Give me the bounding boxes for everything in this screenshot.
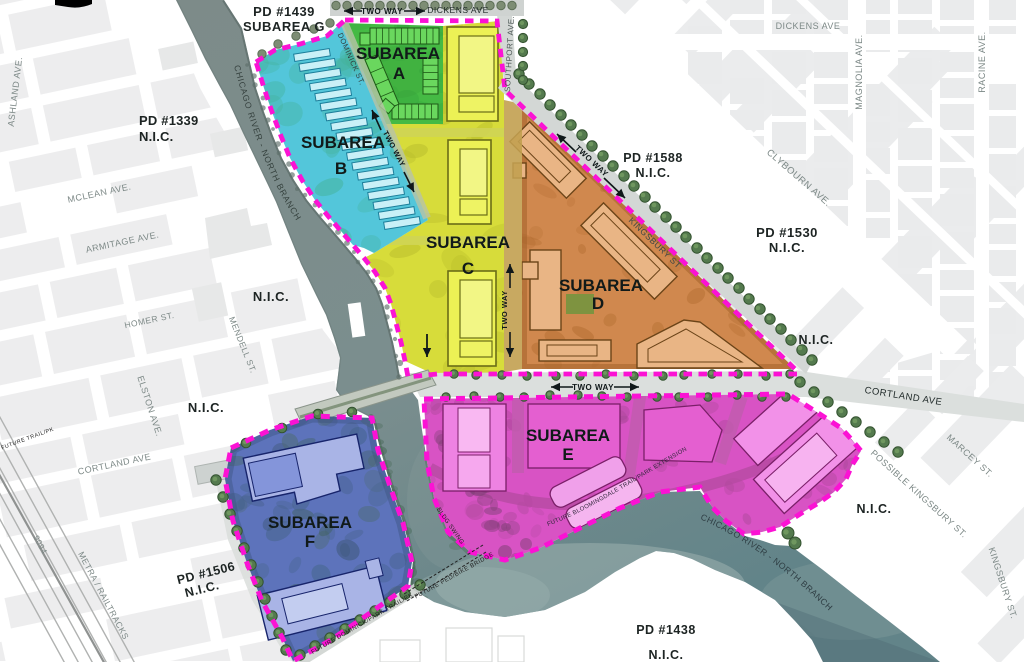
svg-text:A: A xyxy=(393,64,405,83)
svg-text:N.I.C.: N.I.C. xyxy=(636,166,671,180)
svg-text:SUBAREA: SUBAREA xyxy=(356,44,440,63)
svg-text:N.I.C.: N.I.C. xyxy=(799,333,834,347)
svg-text:DICKENS AVE: DICKENS AVE xyxy=(776,21,841,31)
svg-text:PD #1530: PD #1530 xyxy=(756,225,818,240)
svg-text:C: C xyxy=(462,259,474,278)
svg-text:N.I.C.: N.I.C. xyxy=(857,502,892,516)
svg-text:SUBAREA: SUBAREA xyxy=(268,513,352,532)
svg-text:SUBAREA: SUBAREA xyxy=(559,276,643,295)
svg-text:TWO WAY: TWO WAY xyxy=(361,7,403,16)
svg-text:SUBAREA: SUBAREA xyxy=(301,133,385,152)
svg-text:SUBAREA: SUBAREA xyxy=(526,426,610,445)
svg-text:TWO WAY: TWO WAY xyxy=(572,383,614,392)
svg-text:TWO WAY: TWO WAY xyxy=(500,290,509,329)
svg-text:PD #1339: PD #1339 xyxy=(139,113,198,128)
svg-text:PD #1438: PD #1438 xyxy=(636,623,696,637)
svg-text:RACINE AVE.: RACINE AVE. xyxy=(977,31,987,92)
svg-text:D: D xyxy=(592,294,604,313)
svg-text:N.I.C.: N.I.C. xyxy=(188,400,224,415)
svg-text:N.I.C.: N.I.C. xyxy=(769,240,805,255)
svg-text:B: B xyxy=(335,159,347,178)
svg-text:MAGNOLIA AVE.: MAGNOLIA AVE. xyxy=(854,34,864,109)
svg-text:E: E xyxy=(562,445,573,464)
svg-text:SUBAREA: SUBAREA xyxy=(426,233,510,252)
svg-text:PD #1439: PD #1439 xyxy=(253,4,315,19)
svg-text:F: F xyxy=(305,532,315,551)
svg-text:SUBAREA G: SUBAREA G xyxy=(243,19,325,34)
svg-text:N.I.C.: N.I.C. xyxy=(649,648,684,662)
svg-text:N.I.C.: N.I.C. xyxy=(139,129,173,144)
svg-text:DICKENS AVE: DICKENS AVE xyxy=(427,5,489,15)
svg-text:PD #1588: PD #1588 xyxy=(623,151,683,165)
svg-text:N.I.C.: N.I.C. xyxy=(253,289,289,304)
